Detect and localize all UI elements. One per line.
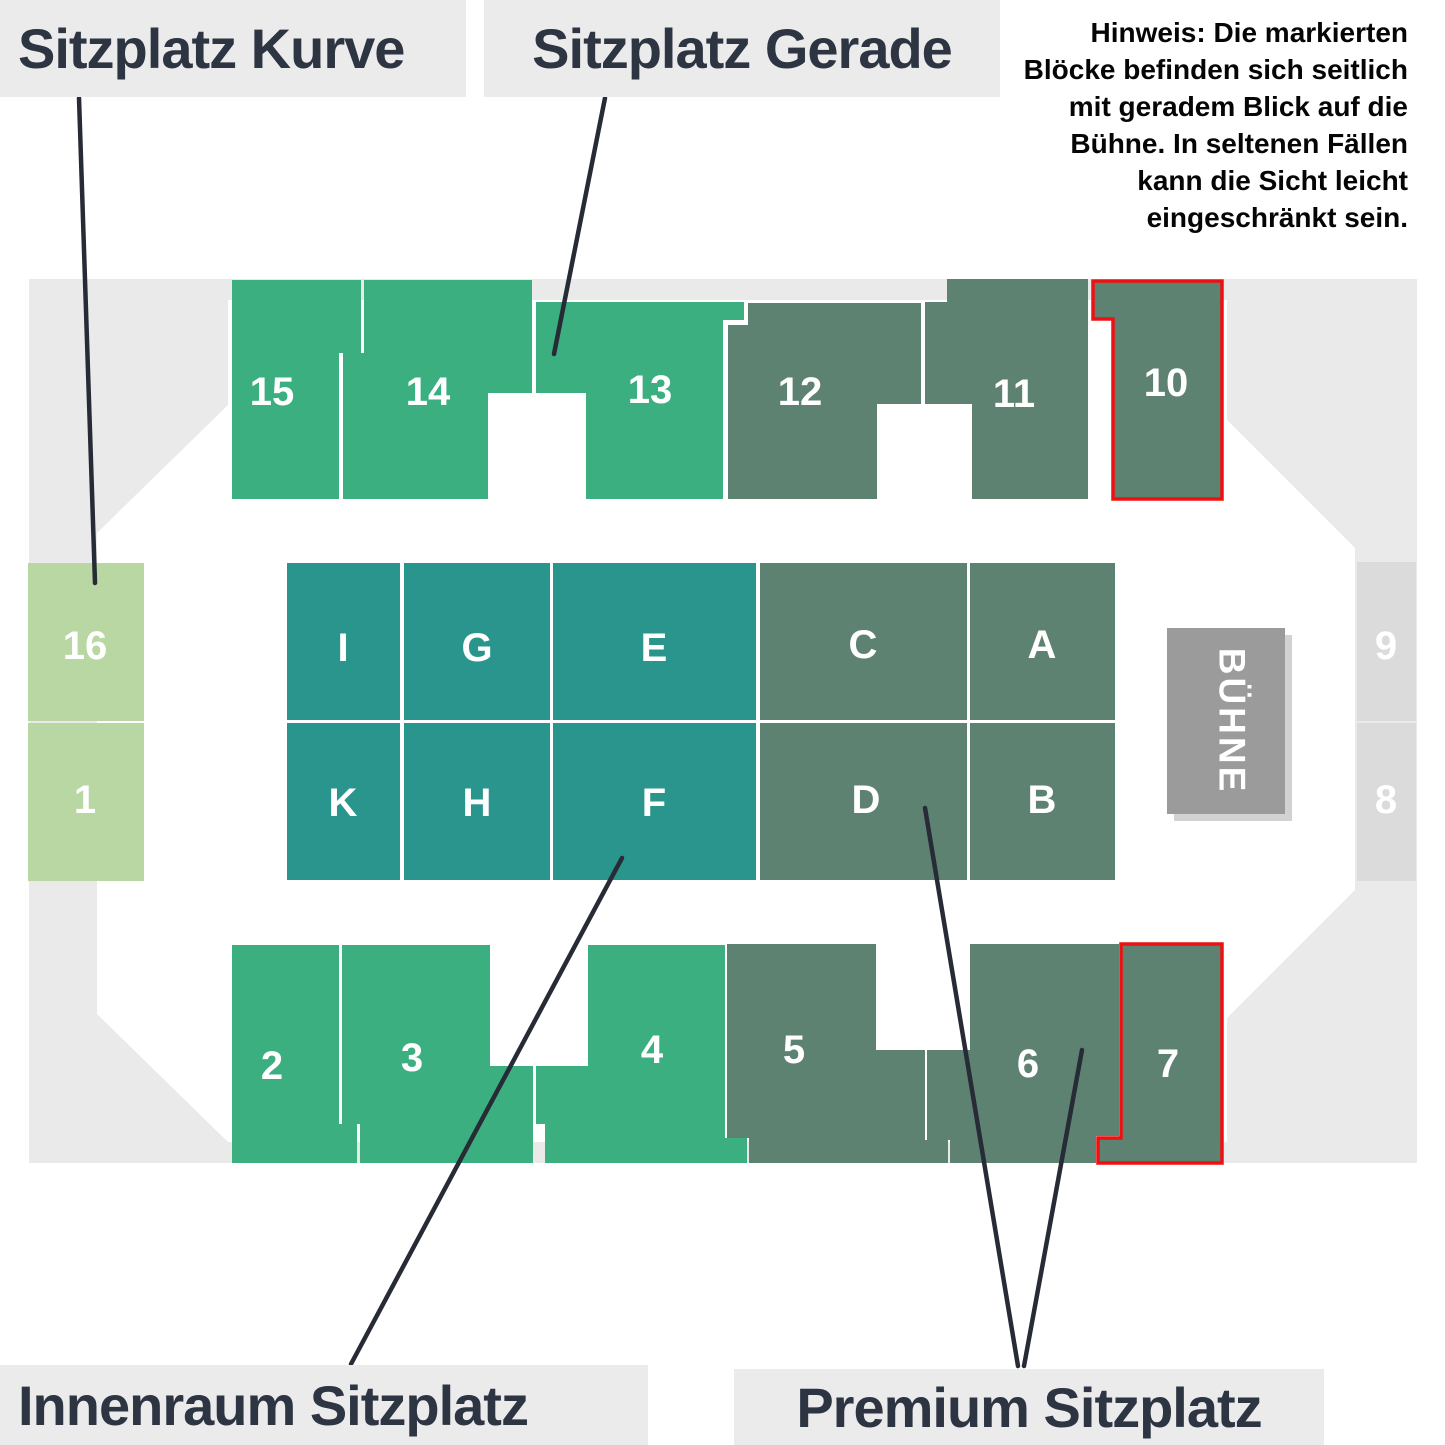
block-7-label: 7 [1157, 1042, 1179, 1086]
stage-label: BÜHNE [1212, 648, 1253, 795]
block-G-label: G [461, 626, 492, 670]
block-11-label: 11 [993, 372, 1035, 416]
block-5[interactable] [727, 944, 948, 1163]
block-3-label: 3 [401, 1036, 423, 1080]
block-1-label: 1 [74, 778, 96, 822]
block-K-label: K [329, 781, 358, 825]
block-12-label: 12 [778, 370, 823, 414]
block-12[interactable] [728, 303, 921, 499]
block-9-label: 9 [1375, 624, 1397, 668]
block-16-label: 16 [63, 624, 108, 668]
legend-premium-sitzplatz: Premium Sitzplatz [734, 1369, 1324, 1445]
block-6-label: 6 [1017, 1042, 1039, 1086]
block-8-label: 8 [1375, 778, 1397, 822]
block-2[interactable] [232, 945, 357, 1163]
block-D-label: D [852, 778, 881, 822]
block-3[interactable] [342, 945, 533, 1163]
hint-note: Hinweis: Die markierten Blöcke befinden … [978, 14, 1408, 236]
block-10-label: 10 [1144, 361, 1189, 405]
block-2-label: 2 [261, 1044, 283, 1088]
block-B-label: B [1028, 778, 1057, 822]
block-14-label: 14 [406, 370, 451, 414]
block-5-label: 5 [783, 1028, 805, 1072]
block-4-label: 4 [641, 1028, 664, 1072]
block-E-label: E [641, 626, 668, 670]
block-15-label: 15 [250, 370, 295, 414]
legend-sitzplatz-kurve: Sitzplatz Kurve [0, 0, 466, 97]
block-A-label: A [1028, 623, 1057, 667]
block-H-label: H [463, 781, 492, 825]
block-13-label: 13 [628, 368, 673, 412]
legend-sitzplatz-gerade-text: Sitzplatz Gerade [532, 16, 952, 81]
legend-sitzplatz-kurve-text: Sitzplatz Kurve [18, 16, 404, 81]
legend-sitzplatz-gerade: Sitzplatz Gerade [484, 0, 1000, 97]
block-C-label: C [849, 623, 878, 667]
legend-premium-sitzplatz-text: Premium Sitzplatz [796, 1375, 1261, 1440]
block-I-label: I [337, 626, 348, 670]
legend-innenraum-sitzplatz: Innenraum Sitzplatz [0, 1365, 648, 1445]
block-F-label: F [642, 781, 666, 825]
legend-innenraum-sitzplatz-text: Innenraum Sitzplatz [18, 1373, 528, 1438]
